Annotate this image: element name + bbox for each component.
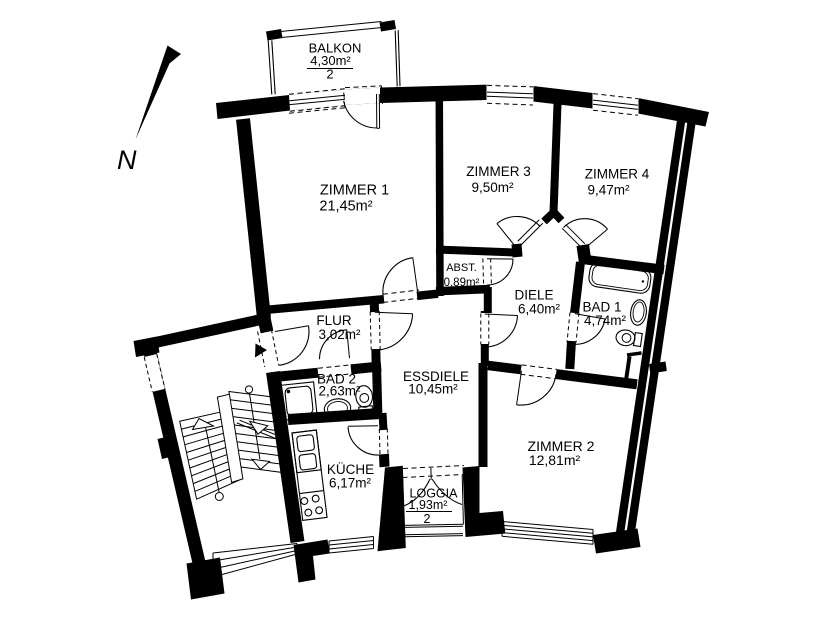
svg-text:ZIMMER 3: ZIMMER 3 <box>466 164 531 179</box>
svg-text:6,17m²: 6,17m² <box>329 476 372 491</box>
svg-text:1,93m²: 1,93m² <box>409 498 448 512</box>
svg-text:2: 2 <box>326 67 333 82</box>
svg-text:ZIMMER 1: ZIMMER 1 <box>320 183 389 199</box>
svg-text:DIELE: DIELE <box>514 288 553 303</box>
svg-text:12,81m²: 12,81m² <box>529 452 581 468</box>
svg-text:4,74m²: 4,74m² <box>584 313 627 328</box>
svg-text:3,02m²: 3,02m² <box>318 327 361 342</box>
svg-text:ABST.: ABST. <box>446 262 477 274</box>
svg-text:ZIMMER 4: ZIMMER 4 <box>585 167 650 182</box>
svg-text:10,45m²: 10,45m² <box>408 382 458 397</box>
svg-text:21,45m²: 21,45m² <box>319 199 372 215</box>
svg-text:FLUR: FLUR <box>316 313 352 328</box>
svg-text:2,63m²: 2,63m² <box>318 384 361 399</box>
svg-text:N: N <box>117 145 137 175</box>
svg-text:0,89m²: 0,89m² <box>444 277 480 289</box>
svg-text:9,50m²: 9,50m² <box>471 180 514 195</box>
svg-text:6,40m²: 6,40m² <box>518 302 561 317</box>
svg-text:2: 2 <box>424 512 431 526</box>
svg-text:9,47m²: 9,47m² <box>587 183 630 198</box>
